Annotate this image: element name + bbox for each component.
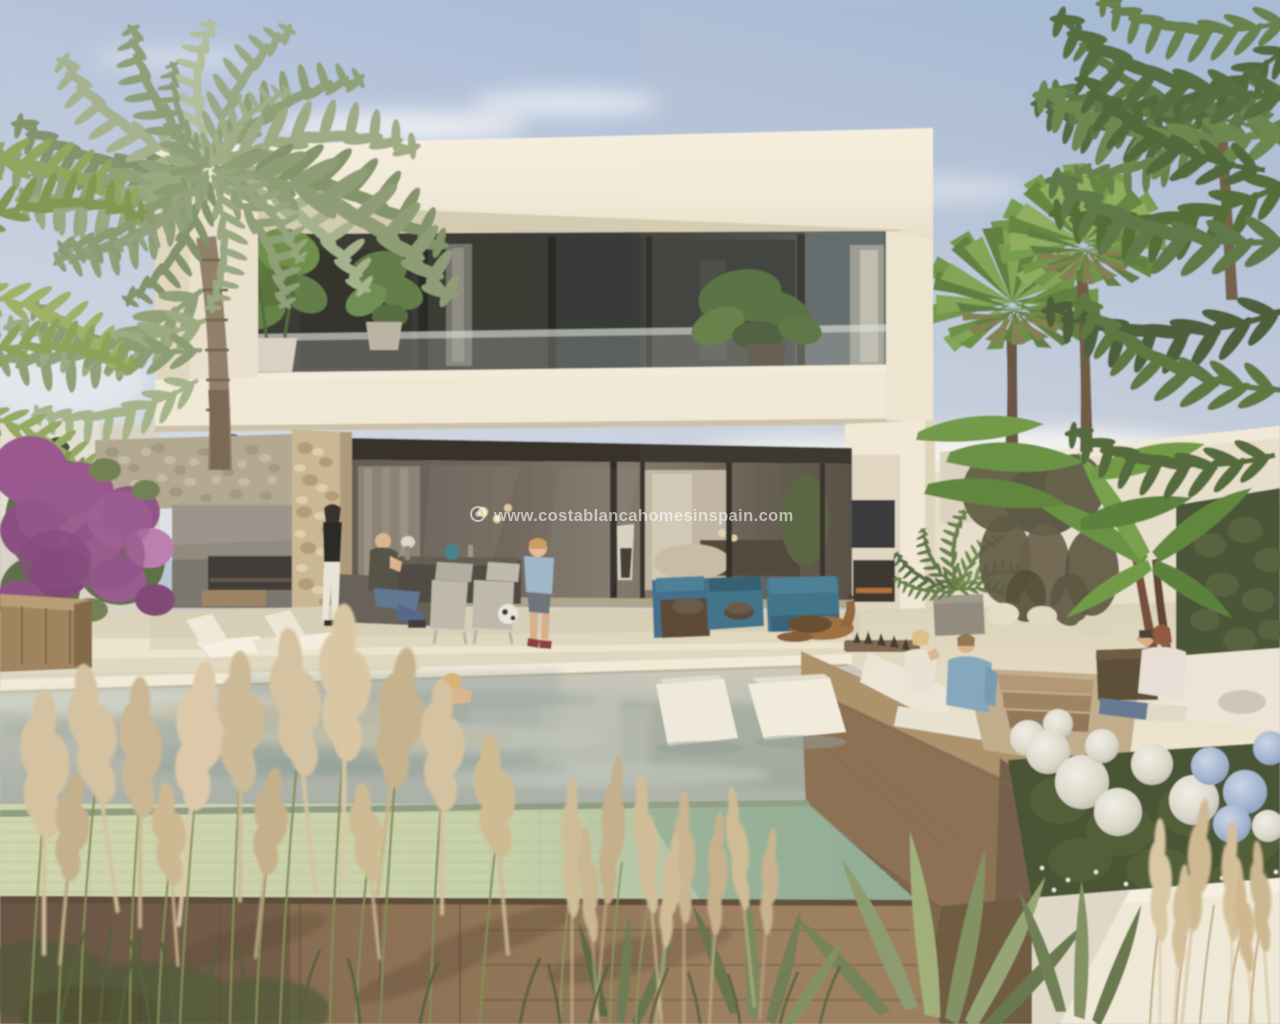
- svg-text:www.costablancahomesinspain.co: www.costablancahomesinspain.com: [493, 507, 794, 525]
